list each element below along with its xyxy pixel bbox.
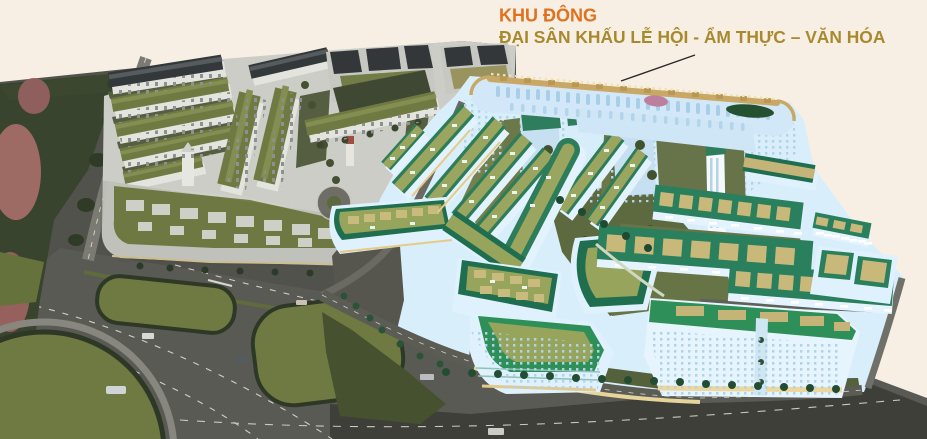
svg-text:ĐẠI SÂN KHẤU LỄ HỘI - ẨM THỰC: ĐẠI SÂN KHẤU LỄ HỘI - ẨM THỰC – VĂN HÓA bbox=[499, 27, 886, 47]
svg-text:KHU ĐÔNG: KHU ĐÔNG bbox=[499, 5, 597, 26]
